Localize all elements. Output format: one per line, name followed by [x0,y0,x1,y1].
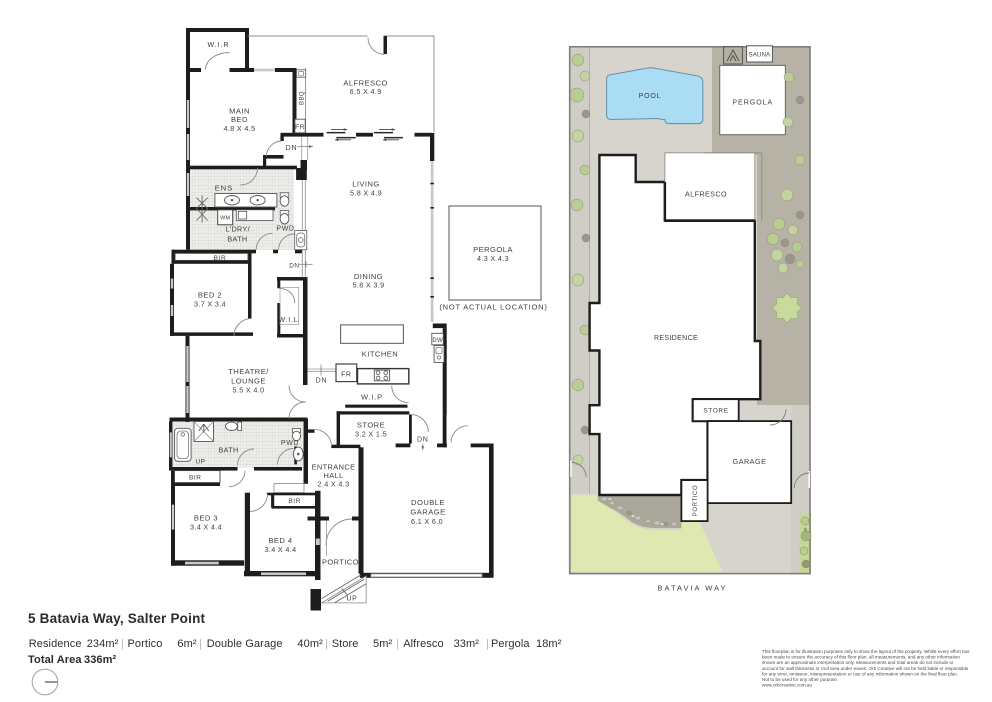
svg-text:FR: FR [341,372,351,379]
svg-text:3.4 X 4.4: 3.4 X 4.4 [265,545,297,554]
svg-text:Portico: Portico [128,638,163,650]
svg-text:PERGOLA: PERGOLA [473,245,513,254]
svg-text:Pergola: Pergola [491,638,530,650]
svg-text:6m²: 6m² [177,638,196,650]
svg-text:LOUNGE: LOUNGE [231,377,266,386]
svg-text:336m²: 336m² [84,654,117,666]
svg-text:POOL: POOL [639,93,662,100]
svg-text:Not to be used for any other p: Not to be used for any other purpose. [762,677,838,682]
svg-text:www.orbcreative.com.au: www.orbcreative.com.au [762,683,812,688]
svg-text:been made to ensure the accura: been made to ensure the accuracy of this… [762,655,960,660]
svg-text:This floorplan is for illustra: This floorplan is for illustration purpo… [762,649,970,654]
svg-text:5.8 X 3.9: 5.8 X 3.9 [353,281,385,290]
svg-text:account for wall thickness or: account for wall thickness or roof area … [762,666,969,671]
svg-text:UP: UP [347,596,358,603]
svg-text:W.I.P: W.I.P [361,393,383,402]
svg-text:|: | [199,638,202,650]
svg-text:BIR: BIR [189,474,202,481]
svg-text:W.I.R: W.I.R [207,42,229,49]
svg-text:2.4 X 4.3: 2.4 X 4.3 [318,480,350,489]
svg-text:PERGOLA: PERGOLA [732,100,773,107]
svg-text:3.2 X 1.5: 3.2 X 1.5 [355,430,387,439]
svg-text:STORE: STORE [357,421,385,430]
svg-text:LIVING: LIVING [352,180,380,189]
svg-text:Store: Store [332,638,359,650]
svg-text:BED 4: BED 4 [268,536,292,545]
svg-text:33m²: 33m² [454,638,480,650]
svg-text:Total Area: Total Area [28,654,82,666]
svg-text:3.4 X 4.4: 3.4 X 4.4 [190,523,222,532]
svg-text:DN: DN [289,262,299,269]
svg-text:40m²: 40m² [297,638,323,650]
svg-text:BBQ: BBQ [299,91,305,105]
svg-text:UP: UP [195,459,205,466]
svg-text:THEATRE/: THEATRE/ [228,367,269,376]
svg-text:FR: FR [295,124,305,131]
svg-text:|: | [121,638,124,650]
svg-text:WM: WM [220,215,230,221]
svg-text:Alfresco: Alfresco [403,638,444,650]
svg-text:GARAGE: GARAGE [733,457,767,466]
svg-text:BATH: BATH [227,235,247,244]
svg-text:Double Garage: Double Garage [207,638,283,650]
svg-text:|: | [486,638,489,650]
svg-text:PORTICO: PORTICO [322,558,359,567]
svg-text:PWD: PWD [281,440,299,447]
svg-text:6.1 X 6.0: 6.1 X 6.0 [411,517,443,526]
svg-text:18m²: 18m² [536,638,562,650]
svg-text:ENS: ENS [215,184,233,193]
svg-text:DN: DN [417,437,429,444]
svg-text:5.5 X 4.0: 5.5 X 4.0 [233,386,265,395]
svg-text:Residence: Residence [29,638,82,650]
svg-text:234m²: 234m² [87,638,119,650]
svg-text:BED: BED [231,115,248,124]
svg-text:for any error, omission, misre: for any error, omission, misrepresentati… [762,671,958,676]
svg-text:5.8 X 4.9: 5.8 X 4.9 [350,189,382,198]
svg-text:(NOT ACTUAL LOCATION): (NOT ACTUAL LOCATION) [439,303,547,312]
svg-text:DW: DW [432,338,443,344]
svg-text:STORE: STORE [703,408,728,415]
svg-text:3.7 X 3.4: 3.7 X 3.4 [194,300,226,309]
svg-text:|: | [396,638,399,650]
svg-text:BED 2: BED 2 [198,291,222,300]
svg-text:5 Batavia Way, Salter Point: 5 Batavia Way, Salter Point [28,611,206,626]
svg-text:DN: DN [316,378,328,385]
svg-text:SAUNA: SAUNA [749,52,771,58]
svg-text:BATAVIA WAY: BATAVIA WAY [658,584,728,593]
svg-text:DN: DN [286,145,298,152]
svg-text:RESIDENCE: RESIDENCE [654,335,698,342]
svg-text:4.8 X 4.5: 4.8 X 4.5 [224,124,256,133]
svg-text:GARAGE: GARAGE [410,508,445,517]
svg-text:L'DRY/: L'DRY/ [225,225,250,234]
svg-text:BIR: BIR [214,255,227,262]
svg-text:5m²: 5m² [373,638,392,650]
svg-text:|: | [325,638,328,650]
svg-text:DOUBLE: DOUBLE [411,498,445,507]
svg-text:PWD: PWD [276,225,294,232]
svg-text:ALFRESCO: ALFRESCO [685,190,727,199]
svg-text:W.I.L: W.I.L [279,317,299,324]
svg-text:KITCHEN: KITCHEN [362,350,398,359]
svg-text:BATH: BATH [218,446,238,455]
svg-text:shown are an approximate inter: shown are an approximate interpretation … [762,660,954,665]
svg-text:6.5 X 4.9: 6.5 X 4.9 [350,87,382,96]
svg-text:BIR: BIR [288,498,301,505]
svg-text:BED 3: BED 3 [194,514,218,523]
svg-text:4.3 X 4.3: 4.3 X 4.3 [477,254,509,263]
svg-text:PORTICO: PORTICO [693,485,699,516]
